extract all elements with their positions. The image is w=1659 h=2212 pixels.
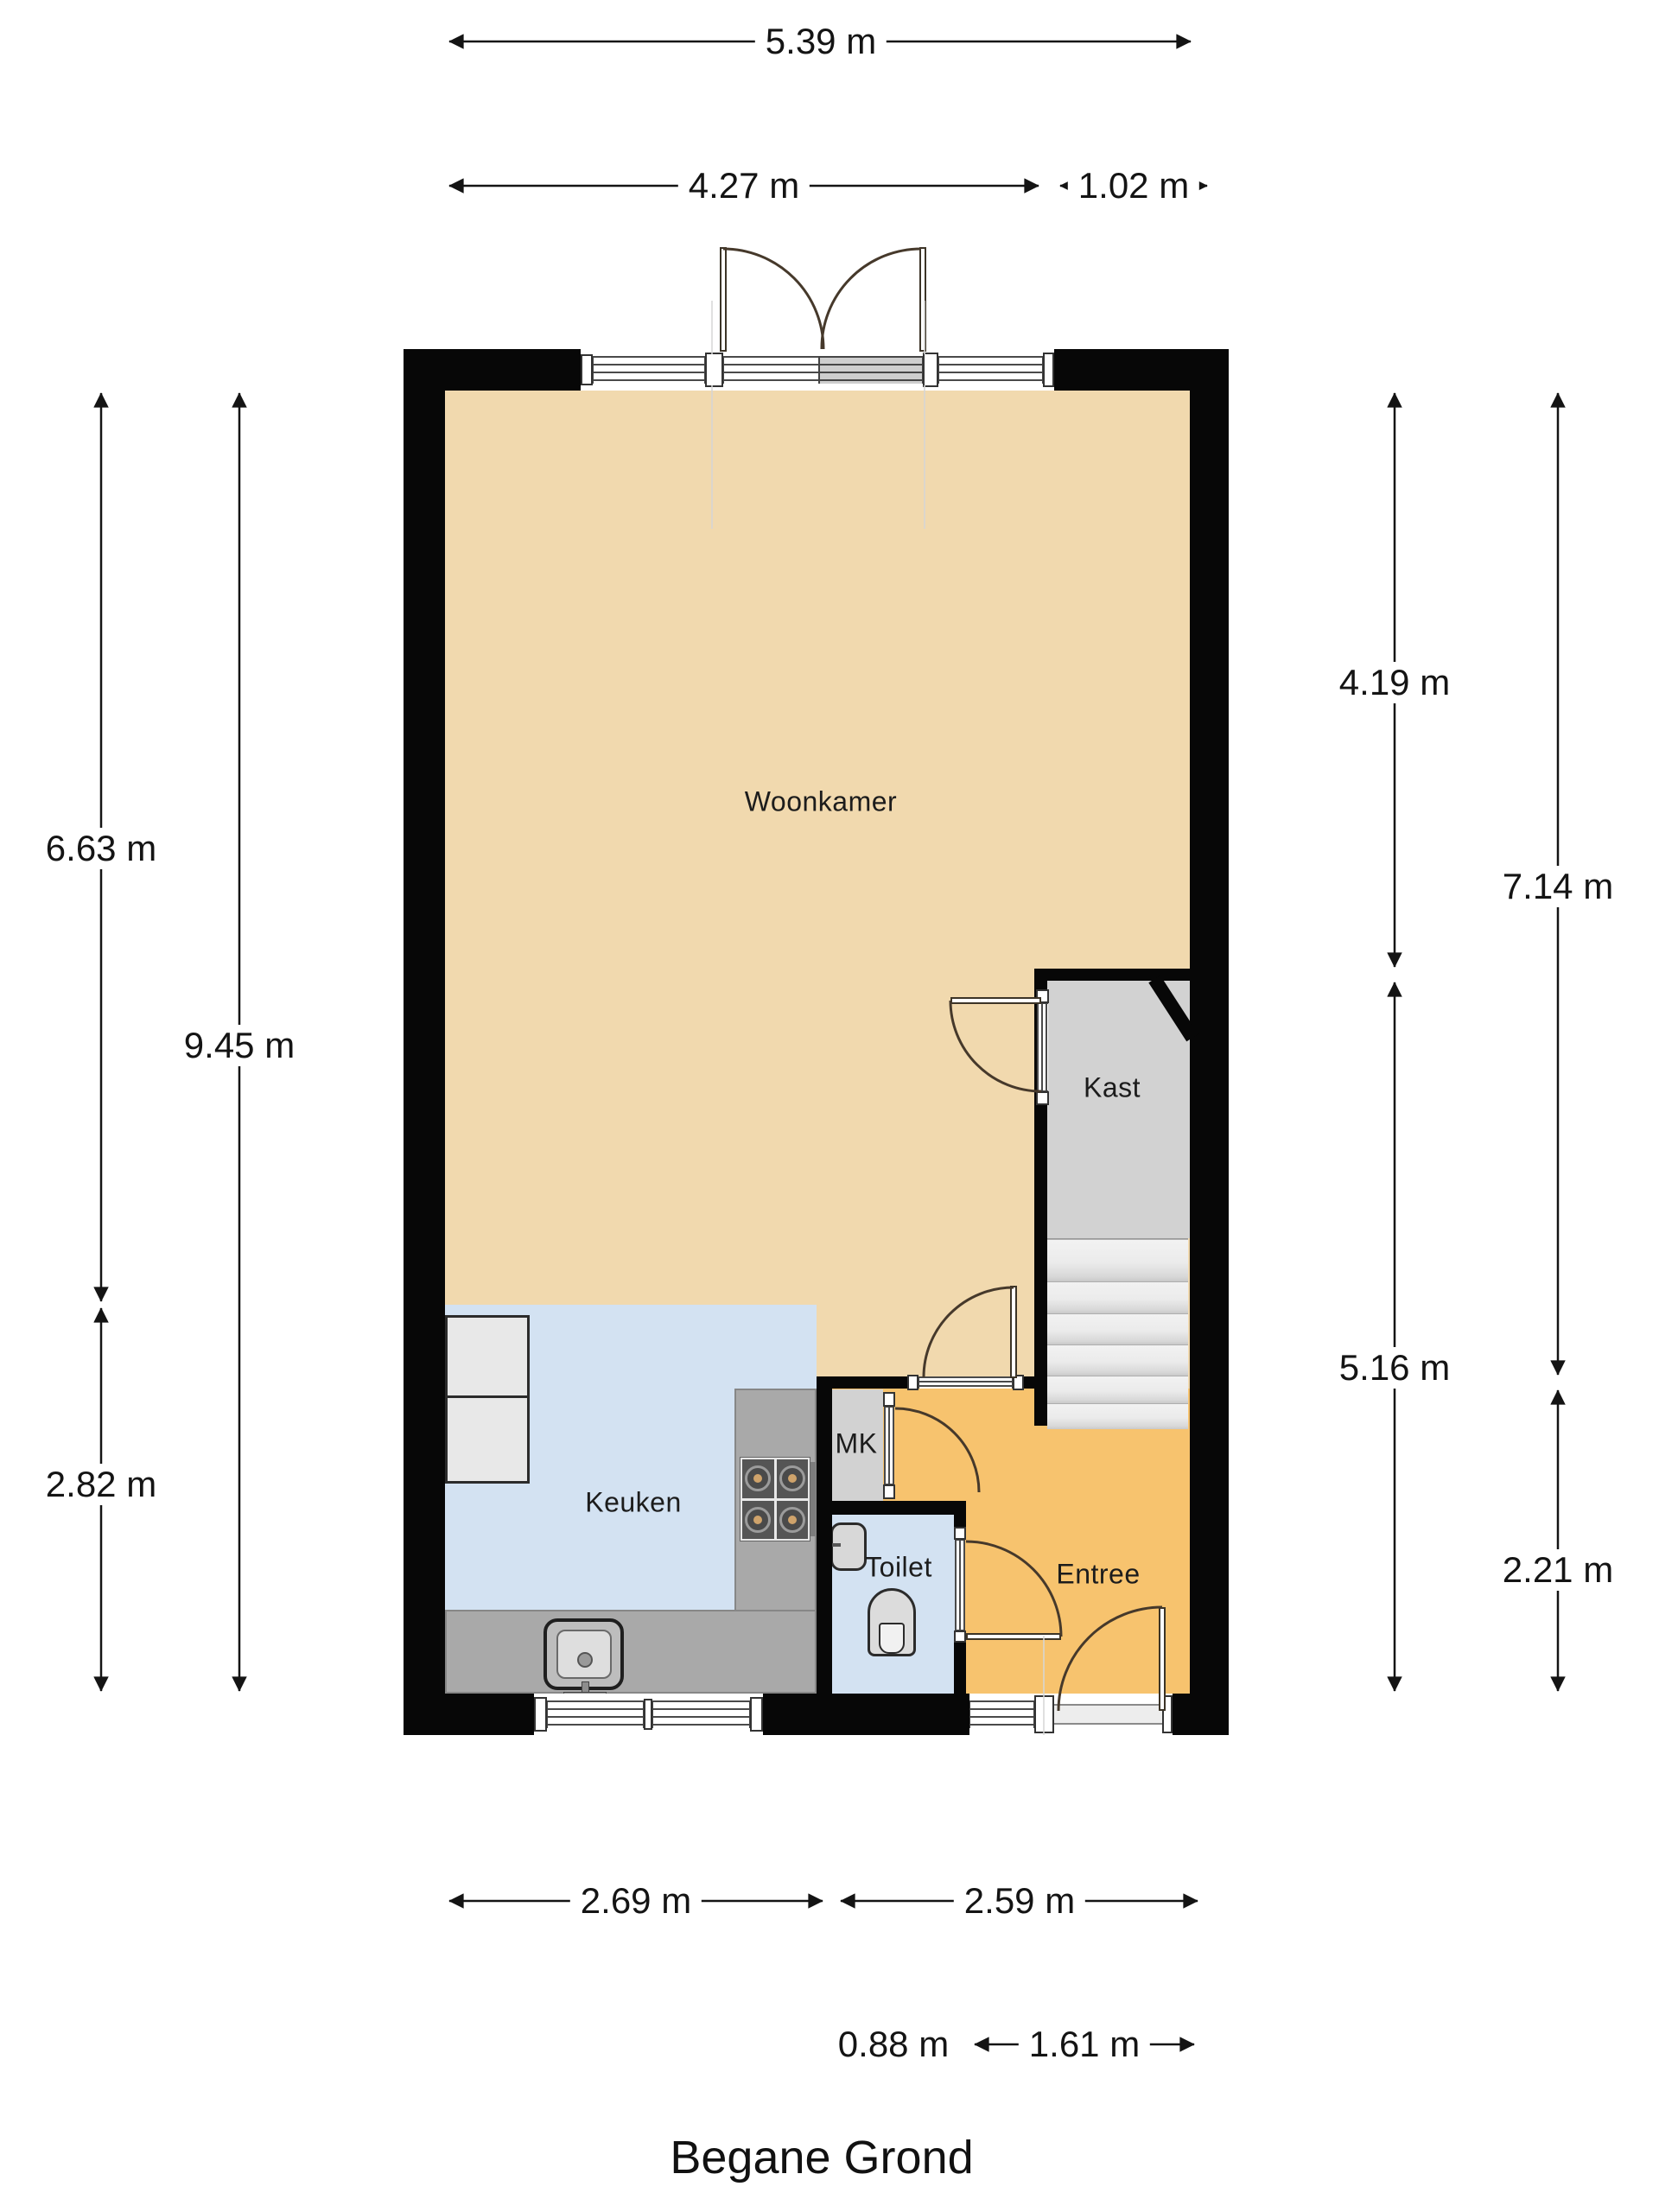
toilet-door-leaf bbox=[966, 1633, 1061, 1640]
burner-icon bbox=[777, 1459, 809, 1498]
toilet-door-frame bbox=[954, 1630, 966, 1643]
burner-dot-icon bbox=[788, 1516, 797, 1524]
glass-door-panel bbox=[918, 1376, 1013, 1389]
stair-tread bbox=[1047, 1281, 1188, 1313]
label-entree: Entree bbox=[1056, 1559, 1140, 1591]
cooktop-handle bbox=[810, 1462, 816, 1536]
window-frame bbox=[1043, 353, 1054, 387]
burner-dot-icon bbox=[753, 1474, 762, 1483]
glass-door-leaf bbox=[1010, 1286, 1017, 1378]
dim-bottom-door: 1.61 m bbox=[1019, 2024, 1150, 2065]
double-door-right-leaf bbox=[919, 247, 926, 352]
window-frame bbox=[534, 1697, 547, 1732]
wall-kast-top bbox=[1035, 969, 1190, 981]
stair-tread bbox=[1047, 1403, 1188, 1429]
mk-door-panel bbox=[884, 1407, 894, 1484]
kast-door-leaf bbox=[950, 997, 1041, 1004]
room-kast bbox=[1047, 981, 1190, 1238]
cooktop bbox=[740, 1457, 810, 1541]
dim-top-side: 1.02 m bbox=[1068, 165, 1199, 207]
window-frame bbox=[750, 1697, 763, 1732]
wall-toilet-corner bbox=[954, 1515, 966, 1527]
dim-left-upper: 6.63 m bbox=[35, 828, 167, 869]
stair-tread bbox=[1047, 1239, 1188, 1281]
window-top-3 bbox=[938, 356, 1043, 384]
label-woonkamer: Woonkamer bbox=[745, 786, 897, 818]
dim-right-inner-upper: 4.19 m bbox=[1329, 662, 1460, 703]
dim-left-total: 9.45 m bbox=[174, 1025, 305, 1066]
label-toilet: Toilet bbox=[865, 1552, 932, 1584]
window-bottom-2 bbox=[652, 1700, 750, 1728]
wall-toilet-bottom bbox=[954, 1643, 966, 1694]
dim-left-lower: 2.82 m bbox=[35, 1464, 167, 1505]
stair-tread bbox=[1047, 1313, 1188, 1344]
floorplan-page: { "title": "Begane Grond", "rooms": { "l… bbox=[0, 0, 1659, 2212]
wall-bottom-segment-3 bbox=[1173, 1694, 1229, 1735]
wall-bottom-segment-1 bbox=[404, 1694, 534, 1735]
burner-icon bbox=[742, 1501, 774, 1540]
window-top-2 bbox=[723, 356, 819, 384]
wall-toilet-top bbox=[817, 1501, 966, 1515]
door-top-sill-shade bbox=[819, 356, 923, 384]
window-frame bbox=[581, 354, 593, 385]
wall-glassdoor-right bbox=[1024, 1376, 1047, 1389]
page-title: Begane Grond bbox=[670, 2131, 973, 2184]
double-door-left-arc bbox=[723, 249, 823, 349]
wall-bottom-segment-2 bbox=[763, 1694, 969, 1735]
dim-top-main: 4.27 m bbox=[678, 165, 810, 207]
kitchen-tall-cabinet-upper bbox=[445, 1315, 530, 1398]
staircase bbox=[1047, 1238, 1188, 1426]
window-top-1 bbox=[593, 356, 705, 384]
window-mullion bbox=[705, 353, 723, 387]
kitchen-tall-cabinet-lower bbox=[445, 1395, 530, 1484]
front-door-frame-left bbox=[1034, 1695, 1054, 1733]
double-door-left-leaf bbox=[720, 247, 727, 352]
wall-top-right-segment bbox=[1054, 349, 1229, 391]
toilet-door-panel bbox=[955, 1540, 965, 1630]
dim-bottom-wall: 0.88 m bbox=[828, 2024, 959, 2065]
stair-tread bbox=[1047, 1344, 1188, 1376]
burner-dot-icon bbox=[788, 1474, 797, 1483]
front-door-leaf bbox=[1159, 1607, 1166, 1711]
kast-door-panel bbox=[1037, 1003, 1048, 1091]
wall-top-left-segment bbox=[404, 349, 581, 391]
wall-kitchen-vertical bbox=[817, 1376, 832, 1694]
label-mk: MK bbox=[836, 1428, 878, 1460]
dim-top-total: 5.39 m bbox=[755, 21, 887, 62]
double-door-right-arc bbox=[822, 249, 921, 349]
kast-door-frame bbox=[1036, 1091, 1049, 1105]
burner-dot-icon bbox=[753, 1516, 762, 1524]
door-frame bbox=[923, 353, 938, 387]
dim-bottom-kitchen: 2.69 m bbox=[570, 1880, 702, 1922]
wall-left bbox=[404, 349, 445, 1735]
hand-basin bbox=[830, 1522, 867, 1571]
toilet-door-frame bbox=[954, 1527, 966, 1540]
burner-icon bbox=[742, 1459, 774, 1498]
label-keuken: Keuken bbox=[585, 1487, 682, 1519]
mk-door-frame bbox=[883, 1392, 895, 1407]
mk-door-frame bbox=[883, 1484, 895, 1499]
window-bottom-3 bbox=[969, 1700, 1034, 1728]
sink-drain-icon bbox=[577, 1652, 593, 1668]
hand-basin-tap-icon bbox=[832, 1543, 841, 1547]
burner-icon bbox=[777, 1501, 809, 1540]
label-kast: Kast bbox=[1084, 1072, 1141, 1104]
kitchen-counter-bottom bbox=[445, 1610, 817, 1694]
glass-door-frame bbox=[907, 1375, 918, 1390]
dim-right-outer-upper: 7.14 m bbox=[1492, 866, 1624, 907]
window-bottom-1 bbox=[547, 1700, 644, 1728]
toilet-seat bbox=[879, 1623, 905, 1654]
front-door-threshold bbox=[1054, 1704, 1162, 1725]
window-mullion bbox=[644, 1699, 652, 1730]
dim-right-inner-lower: 5.16 m bbox=[1329, 1347, 1460, 1389]
dim-right-outer-lower: 2.21 m bbox=[1492, 1549, 1624, 1591]
wall-right bbox=[1190, 349, 1229, 1735]
stair-tread bbox=[1047, 1376, 1188, 1403]
dim-bottom-entry: 2.59 m bbox=[954, 1880, 1085, 1922]
